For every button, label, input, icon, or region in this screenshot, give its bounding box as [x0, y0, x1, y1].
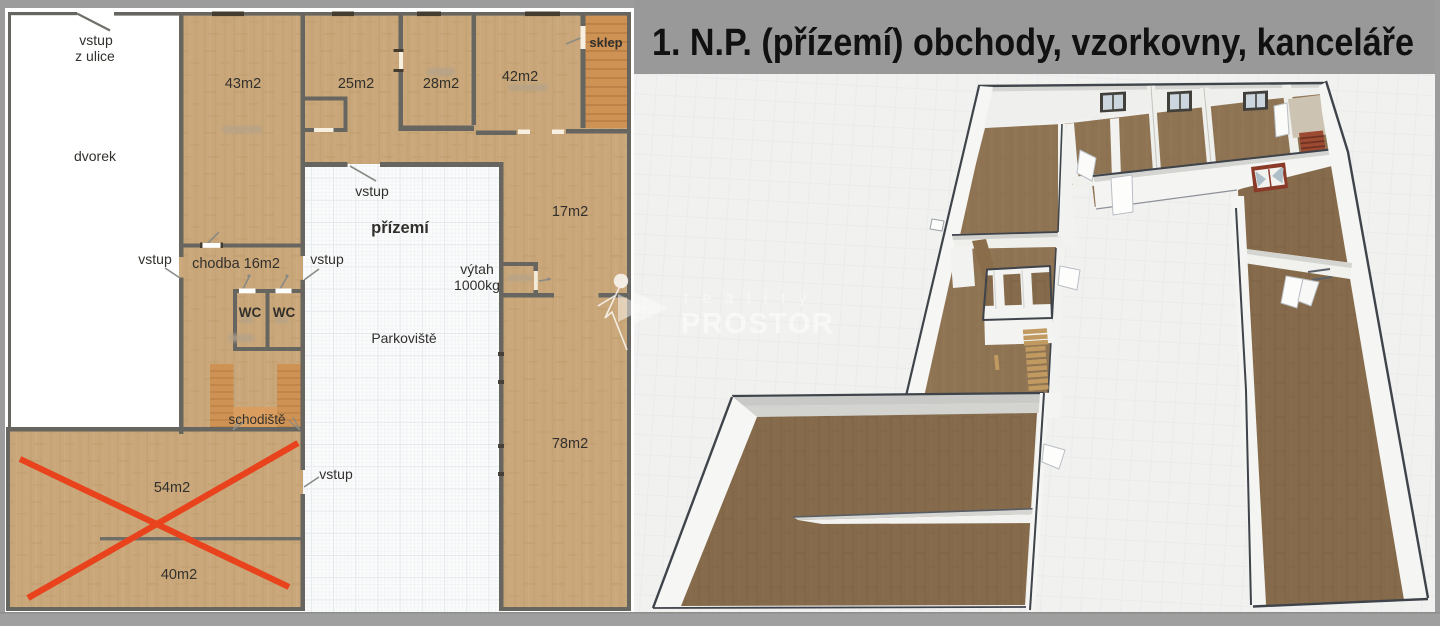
- svg-text:sklep: sklep: [589, 35, 622, 50]
- svg-text:28m2: 28m2: [423, 76, 459, 92]
- svg-text:reality: reality: [684, 290, 820, 307]
- svg-text:vstup: vstup: [79, 32, 113, 48]
- svg-text:1. N.P. (přízemí) obchody, vzo: 1. N.P. (přízemí) obchody, vzorkovny, ka…: [652, 22, 1414, 64]
- svg-text:vstup: vstup: [355, 183, 389, 199]
- svg-text:WC: WC: [239, 305, 262, 320]
- svg-text:schodiště: schodiště: [228, 412, 285, 427]
- svg-text:40m2: 40m2: [161, 567, 197, 583]
- svg-text:dvorek: dvorek: [74, 148, 117, 164]
- svg-text:výtah: výtah: [460, 261, 493, 277]
- svg-text:Parkoviště: Parkoviště: [371, 330, 437, 346]
- svg-text:vstup: vstup: [319, 466, 353, 482]
- svg-text:17m2: 17m2: [552, 204, 588, 220]
- svg-text:vstup: vstup: [310, 251, 344, 267]
- svg-text:vstup: vstup: [138, 251, 172, 267]
- svg-text:PROSTOR: PROSTOR: [681, 308, 834, 340]
- svg-text:54m2: 54m2: [154, 480, 190, 496]
- svg-text:z ulice: z ulice: [75, 48, 115, 64]
- svg-text:WC: WC: [273, 305, 296, 320]
- svg-text:přízemí: přízemí: [371, 219, 430, 237]
- svg-text:25m2: 25m2: [338, 76, 374, 92]
- svg-text:1000kg: 1000kg: [454, 277, 500, 293]
- svg-text:78m2: 78m2: [552, 436, 588, 452]
- svg-text:chodba 16m2: chodba 16m2: [192, 256, 280, 272]
- svg-text:42m2: 42m2: [502, 69, 538, 85]
- svg-text:43m2: 43m2: [225, 76, 261, 92]
